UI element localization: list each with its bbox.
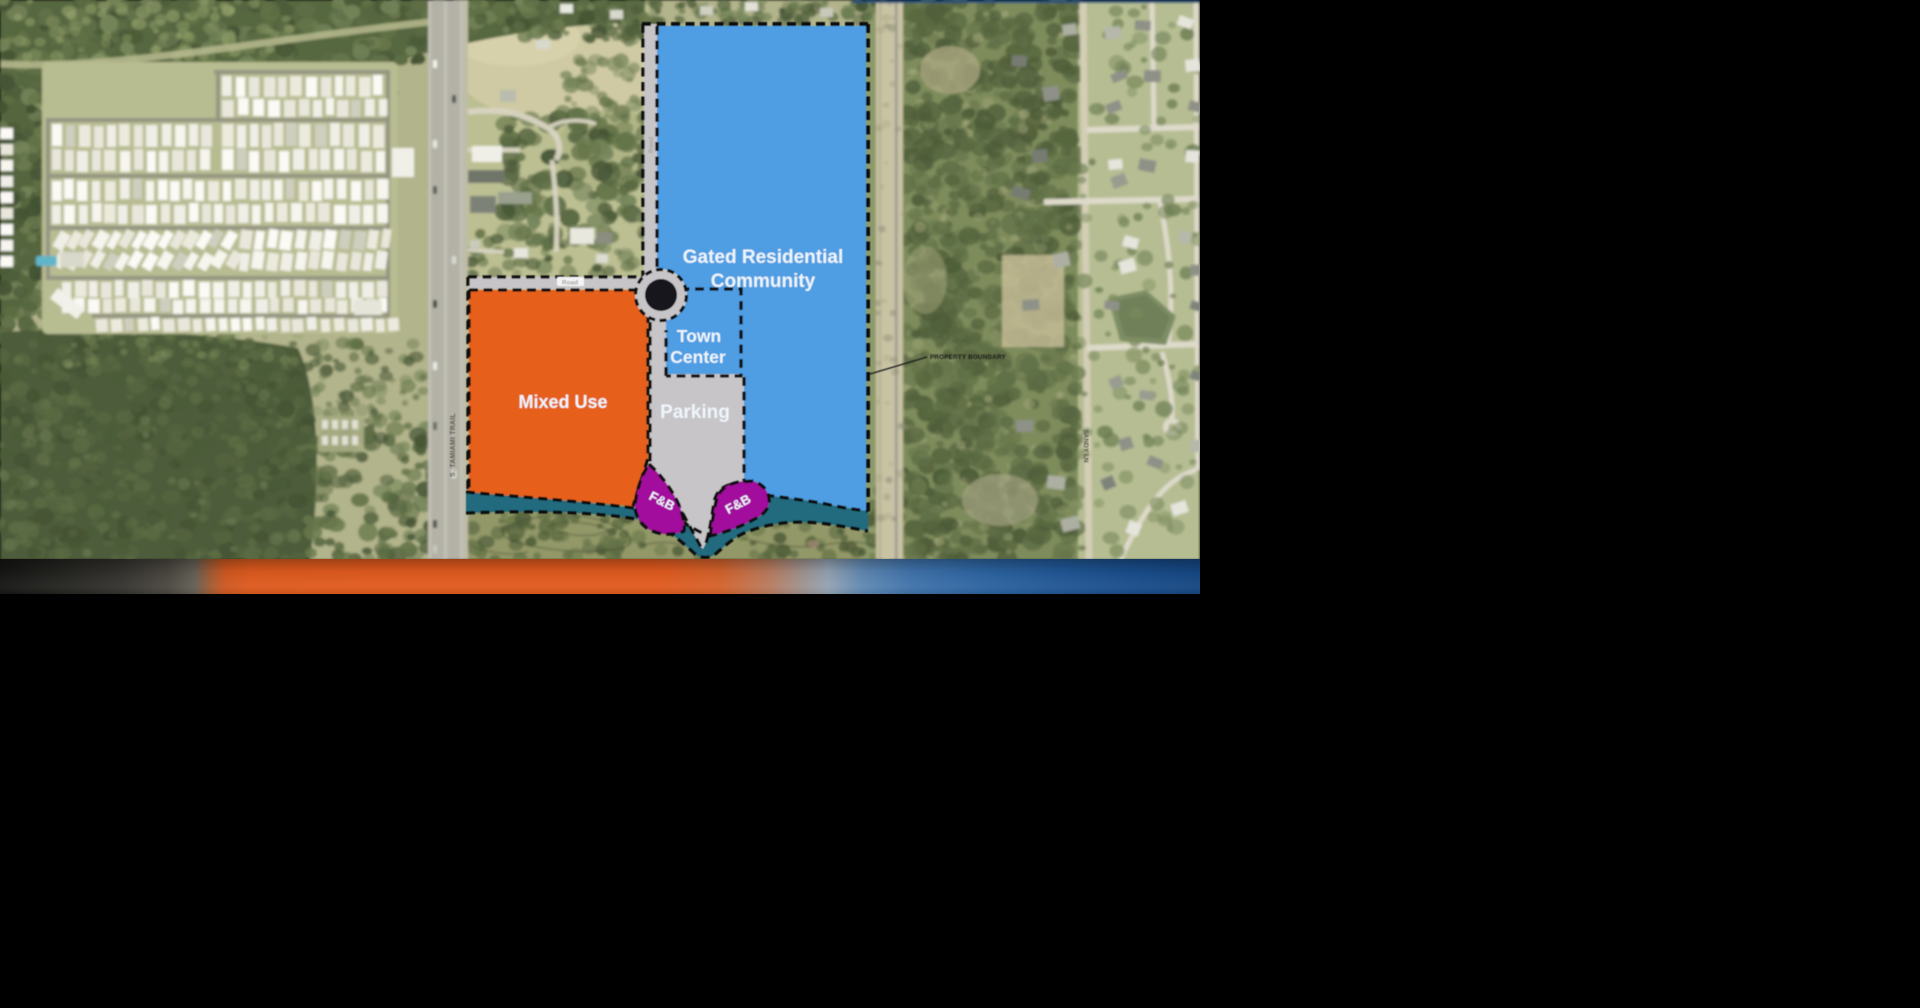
svg-text:Community: Community — [711, 271, 816, 292]
svg-text:PROPERTY BOUNDARY: PROPERTY BOUNDARY — [930, 354, 1006, 361]
svg-text:Center: Center — [670, 347, 726, 367]
svg-text:Road: Road — [648, 137, 655, 153]
svg-text:Mixed Use: Mixed Use — [518, 392, 607, 412]
svg-text:S. TAMIAMI TRAIL: S. TAMIAMI TRAIL — [450, 413, 457, 477]
svg-text:SANDY LN: SANDY LN — [1082, 429, 1089, 462]
svg-text:Town: Town — [677, 326, 721, 346]
svg-text:Road: Road — [562, 280, 578, 287]
svg-text:Gated Residential: Gated Residential — [683, 247, 844, 268]
svg-text:Parking: Parking — [660, 402, 730, 423]
